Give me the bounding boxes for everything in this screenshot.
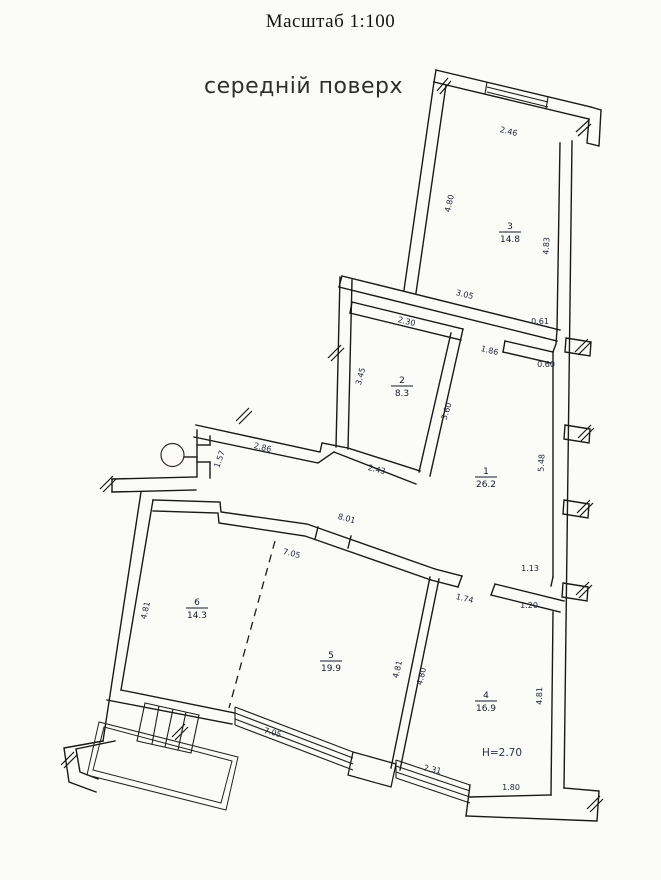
svg-text:5: 5 (328, 651, 334, 661)
dimension-label: 1.80 (502, 783, 520, 792)
height-note: H=2.70 (482, 747, 522, 759)
dimension-label: 0.61 (531, 317, 549, 326)
svg-text:6: 6 (194, 598, 200, 608)
dimension-label: 5.48 (537, 454, 547, 472)
dimension-label: 0.60 (537, 360, 555, 369)
wall-lines (64, 70, 601, 821)
dimension-label: 4.81 (391, 660, 404, 679)
dimension-label: 4.81 (535, 687, 544, 705)
dimension-label: 3.45 (354, 367, 367, 387)
svg-text:8.3: 8.3 (395, 389, 409, 399)
room-label: 28.3 (391, 376, 413, 399)
dimension-label: 4.80 (443, 194, 456, 213)
dimension-label: 1.57 (212, 449, 227, 469)
svg-text:4: 4 (483, 691, 489, 701)
dimension-label: 2.46 (499, 125, 518, 138)
svg-text:14.3: 14.3 (187, 611, 207, 621)
room-label: 126.2 (475, 467, 497, 490)
labels-layer: 314.828.3126.2614.3519.9416.92.464.804.8… (139, 125, 555, 792)
dimension-label: 4.83 (542, 237, 552, 255)
dimension-label: 8.01 (337, 512, 357, 525)
dimension-label: 3.05 (455, 288, 474, 301)
dimension-label: 4.80 (415, 667, 428, 686)
svg-text:16.9: 16.9 (476, 704, 496, 714)
svg-text:14.8: 14.8 (500, 235, 520, 245)
floor-plan-drawing: 314.828.3126.2614.3519.9416.92.464.804.8… (0, 0, 661, 880)
dimension-label: 1.13 (521, 564, 539, 573)
room-label: 314.8 (499, 222, 521, 245)
svg-text:19.9: 19.9 (321, 664, 341, 674)
dimension-label: 2.86 (253, 441, 272, 454)
svg-text:3: 3 (507, 222, 513, 232)
room-label: 416.9 (475, 691, 497, 714)
scanned-floor-plan-page: Масштаб 1:100 середній поверх (0, 0, 661, 880)
room-divider-dashed-line (229, 541, 275, 708)
svg-text:2: 2 (399, 376, 405, 386)
dimension-label: 4.81 (139, 601, 152, 620)
svg-text:1: 1 (483, 467, 489, 477)
entrance-circle-symbol (161, 444, 184, 467)
dimension-label: 2.43 (367, 463, 386, 476)
dimension-label: 1.86 (480, 344, 499, 357)
svg-text:26.2: 26.2 (476, 480, 496, 490)
dimension-label: 1.74 (455, 592, 474, 605)
dimension-label: 7.05 (282, 547, 302, 560)
dimension-label: 2.31 (423, 763, 442, 776)
room-label: 614.3 (186, 598, 208, 621)
dimension-label: 3.60 (440, 401, 454, 421)
balcony-outline (87, 722, 238, 810)
room-label: 519.9 (320, 651, 342, 674)
dimension-label: 1.20 (520, 601, 538, 610)
